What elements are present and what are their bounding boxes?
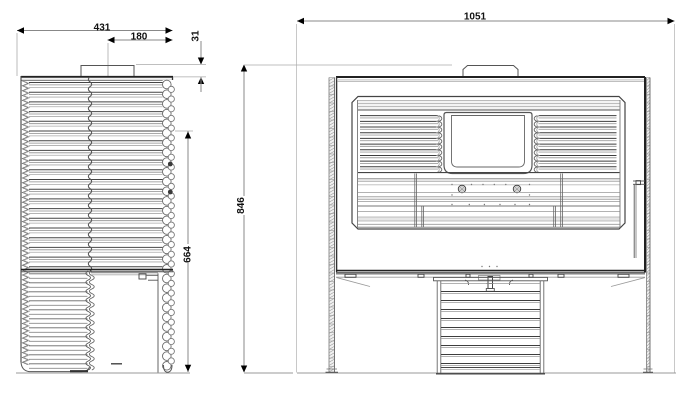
svg-text:664: 664 (183, 246, 194, 263)
svg-text:431: 431 (94, 23, 111, 34)
svg-text:846: 846 (236, 197, 247, 214)
svg-text:180: 180 (131, 32, 148, 43)
svg-text:31: 31 (191, 30, 202, 42)
svg-text:1051: 1051 (464, 12, 487, 23)
